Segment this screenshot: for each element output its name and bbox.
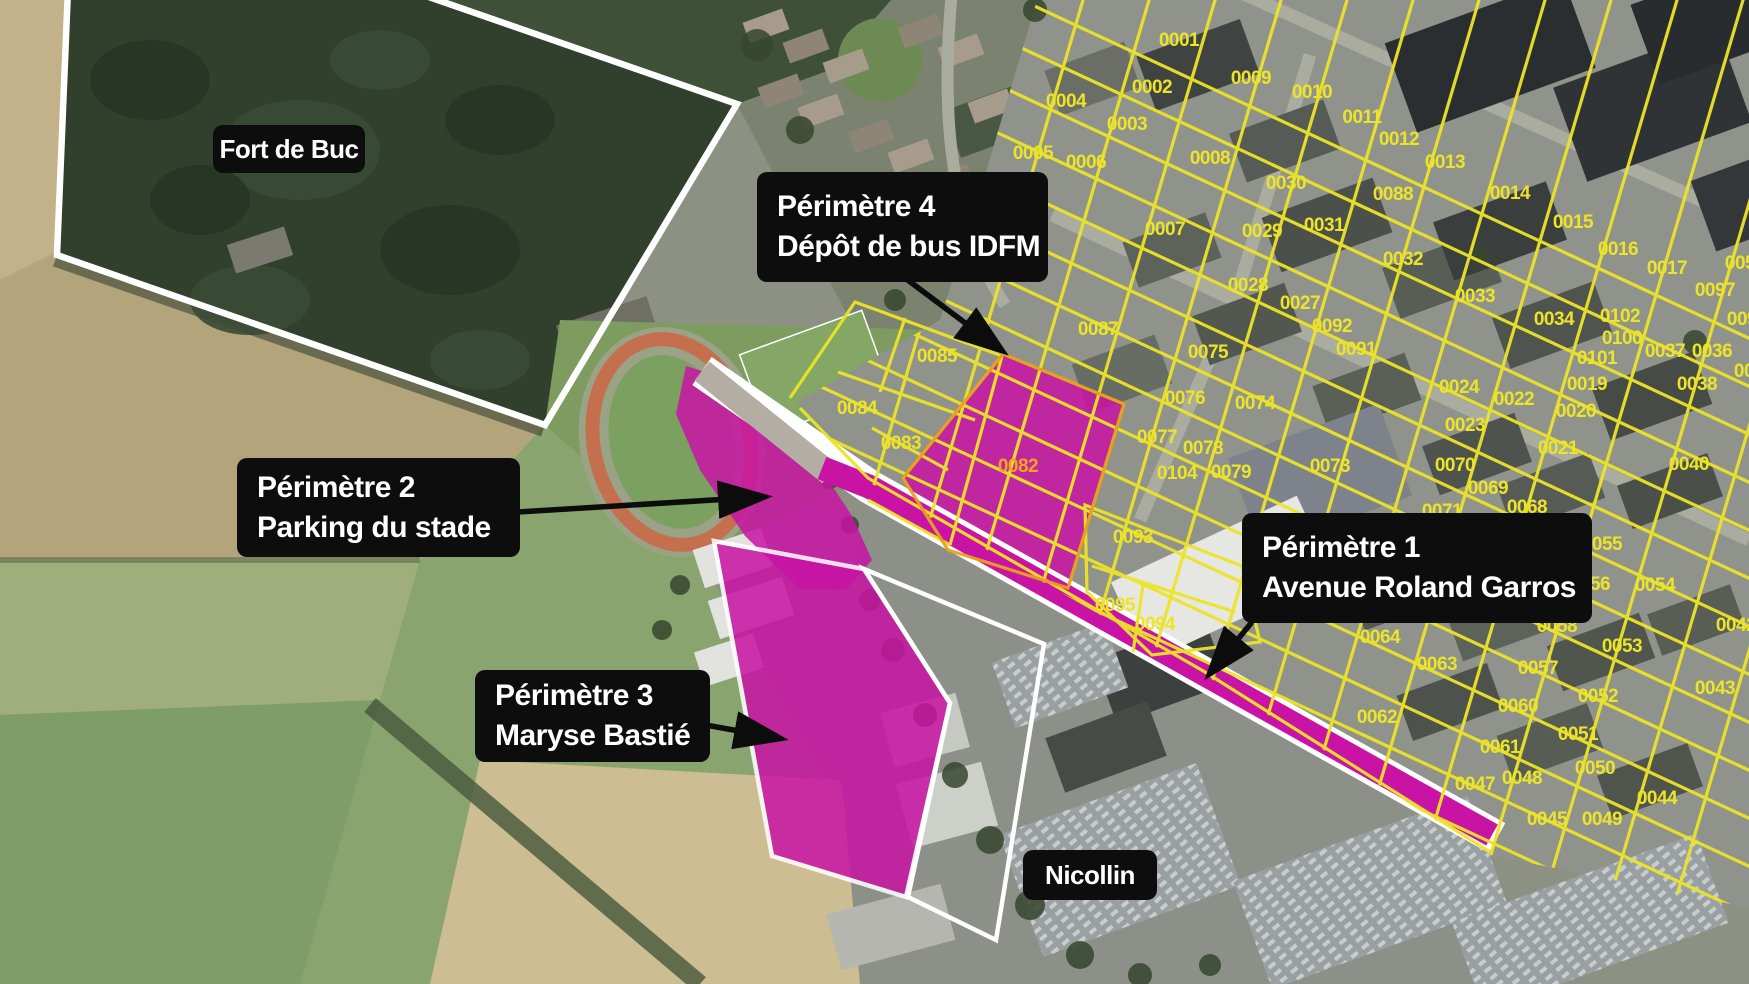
- parcel-number: 0042: [1716, 615, 1749, 636]
- parcel-number: 0094: [1135, 614, 1176, 635]
- parcel-number: 0102: [1600, 306, 1640, 327]
- parcel-number: 0060: [1498, 696, 1538, 717]
- perimetre-2-title: Périmètre 2: [257, 468, 500, 508]
- parcel-number: 005: [1725, 253, 1749, 274]
- parcel-number: 0017: [1647, 258, 1687, 279]
- parcel-number: 0077: [1137, 427, 1177, 448]
- parcel-number: 0101: [1577, 348, 1618, 369]
- parcel-number: 0095: [1095, 595, 1136, 616]
- parcel-number: 0061: [1480, 737, 1521, 758]
- parcel-number: 0053: [1602, 636, 1642, 657]
- parcel-number: 0079: [1211, 462, 1251, 483]
- perimetre-4-label: Périmètre 4 Dépôt de bus IDFM: [757, 172, 1048, 282]
- parcel-number: 0054: [1635, 575, 1676, 596]
- parcel-number: 0043: [1695, 678, 1735, 699]
- parcel-number: 0048: [1502, 768, 1542, 789]
- parcel-number: 0022: [1494, 389, 1534, 410]
- parcel-number: 0032: [1383, 249, 1423, 270]
- parcel-number: 0070: [1435, 455, 1475, 476]
- parcel-number: 0045: [1527, 809, 1568, 830]
- parcel-number: 0031: [1304, 215, 1345, 236]
- parcel-number: 0007: [1145, 219, 1185, 240]
- parcel-number: 0029: [1242, 221, 1282, 242]
- parcel-number: 0097: [1695, 280, 1735, 301]
- parcel-number: 0052: [1578, 686, 1618, 707]
- parcel-number: 0005: [1013, 143, 1054, 164]
- parcel-number: 0087: [1078, 319, 1118, 340]
- parcel-number: 0049: [1582, 809, 1622, 830]
- parcel-number: 0083: [881, 433, 921, 454]
- parcel-number: 0063: [1417, 654, 1457, 675]
- parcel-number: 0020: [1556, 401, 1596, 422]
- parcel-number: 0016: [1598, 239, 1638, 260]
- parcel-number: 0037: [1645, 341, 1685, 362]
- parcel-number: 0074: [1235, 393, 1276, 414]
- parcel-number: 0015: [1553, 212, 1594, 233]
- parcel-number: 0064: [1360, 627, 1401, 648]
- parcel-number: 0010: [1292, 82, 1332, 103]
- perimetre-1-subtitle: Avenue Roland Garros: [1262, 568, 1572, 608]
- parcel-number: 0050: [1575, 758, 1615, 779]
- perimetre-3-label: Périmètre 3 Maryse Bastié: [475, 670, 710, 762]
- parcel-number: 0014: [1490, 183, 1531, 204]
- nicollin-label-text: Nicollin: [1045, 862, 1135, 888]
- perimetre-4-title: Périmètre 4: [777, 187, 1028, 227]
- nicollin-label: Nicollin: [1023, 850, 1157, 900]
- fort-de-buc-label: Fort de Buc: [213, 125, 365, 173]
- parcel-number: 0100: [1602, 328, 1642, 349]
- perimetre-1-title: Périmètre 1: [1262, 528, 1572, 568]
- parcel-number: 0051: [1558, 724, 1599, 745]
- parcel-number: 0040: [1669, 454, 1709, 475]
- parcel-number: 0033: [1455, 286, 1495, 307]
- parcel-number: 0038: [1677, 374, 1717, 395]
- parcel-number: 0084: [837, 398, 878, 419]
- parcel-number: 0073: [1310, 456, 1350, 477]
- parcel-number: 0011: [1342, 107, 1382, 128]
- perimetre-2-subtitle: Parking du stade: [257, 508, 500, 548]
- aerial-map: 0001000200030004000500060007000800090010…: [0, 0, 1749, 984]
- parcel-number: 0047: [1455, 774, 1495, 795]
- parcel-number: 0057: [1518, 658, 1558, 679]
- parcel-number: 0019: [1567, 374, 1607, 395]
- perimetre-1-label: Périmètre 1 Avenue Roland Garros: [1242, 513, 1592, 623]
- parcel-number: 0004: [1046, 91, 1087, 112]
- parcel-number: 0093: [1113, 527, 1153, 548]
- parcel-number: 0028: [1228, 275, 1268, 296]
- parcel-number: 0082: [998, 456, 1038, 477]
- parcel-number: 00: [1734, 361, 1749, 382]
- parcel-number: 0024: [1439, 377, 1480, 398]
- parcel-number: 0062: [1357, 707, 1397, 728]
- parcel-number: 0002: [1132, 77, 1172, 98]
- parcel-number: 0030: [1266, 173, 1306, 194]
- parcel-number: 0088: [1373, 184, 1413, 205]
- parcel-number: 0034: [1534, 309, 1575, 330]
- perimetre-2-label: Périmètre 2 Parking du stade: [237, 458, 520, 557]
- parcel-number: 0003: [1107, 114, 1147, 135]
- perimetre-4-subtitle: Dépôt de bus IDFM: [777, 227, 1028, 267]
- parcel-number: 0023: [1445, 415, 1485, 436]
- parcel-number: 0091: [1336, 339, 1377, 360]
- perimetre-3-title: Périmètre 3: [495, 676, 690, 716]
- parcel-number: 0104: [1157, 463, 1198, 484]
- parcel-number: 0044: [1637, 788, 1678, 809]
- parcel-number: 0036: [1692, 341, 1732, 362]
- parcel-number: 0012: [1379, 129, 1419, 150]
- parcel-number: 0008: [1190, 148, 1230, 169]
- parcel-number: 0075: [1188, 342, 1229, 363]
- parcel-number: 0069: [1468, 478, 1508, 499]
- parcel-number: 0085: [917, 346, 958, 367]
- parcel-number: 0076: [1165, 388, 1205, 409]
- parcel-number: 009: [1727, 309, 1749, 330]
- parcel-number: 0013: [1425, 152, 1465, 173]
- parcel-number: 0027: [1280, 293, 1320, 314]
- fort-de-buc-label-text: Fort de Buc: [220, 136, 359, 162]
- parcel-number: 0006: [1066, 152, 1106, 173]
- parcel-number: 0001: [1159, 30, 1200, 51]
- parcel-number: 0092: [1312, 316, 1352, 337]
- parcel-number: 0009: [1231, 68, 1271, 89]
- parcel-number: 0021: [1538, 438, 1579, 459]
- parcel-number: 0078: [1183, 438, 1223, 459]
- perimetre-3-subtitle: Maryse Bastié: [495, 716, 690, 756]
